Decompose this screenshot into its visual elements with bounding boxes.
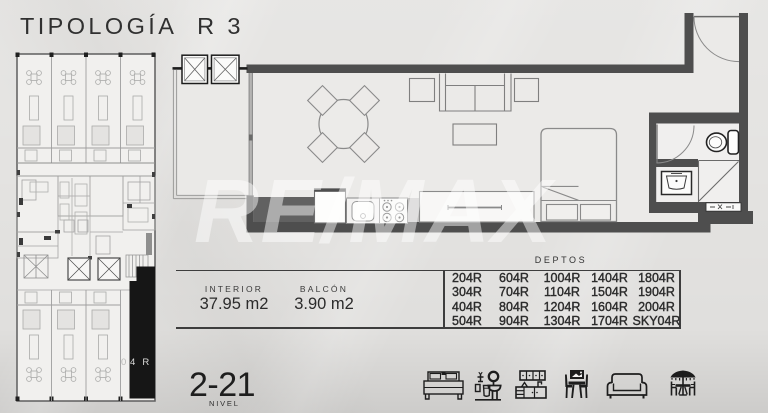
- svg-text:0: 0: [121, 357, 128, 368]
- svg-text:4 R: 4 R: [130, 357, 151, 368]
